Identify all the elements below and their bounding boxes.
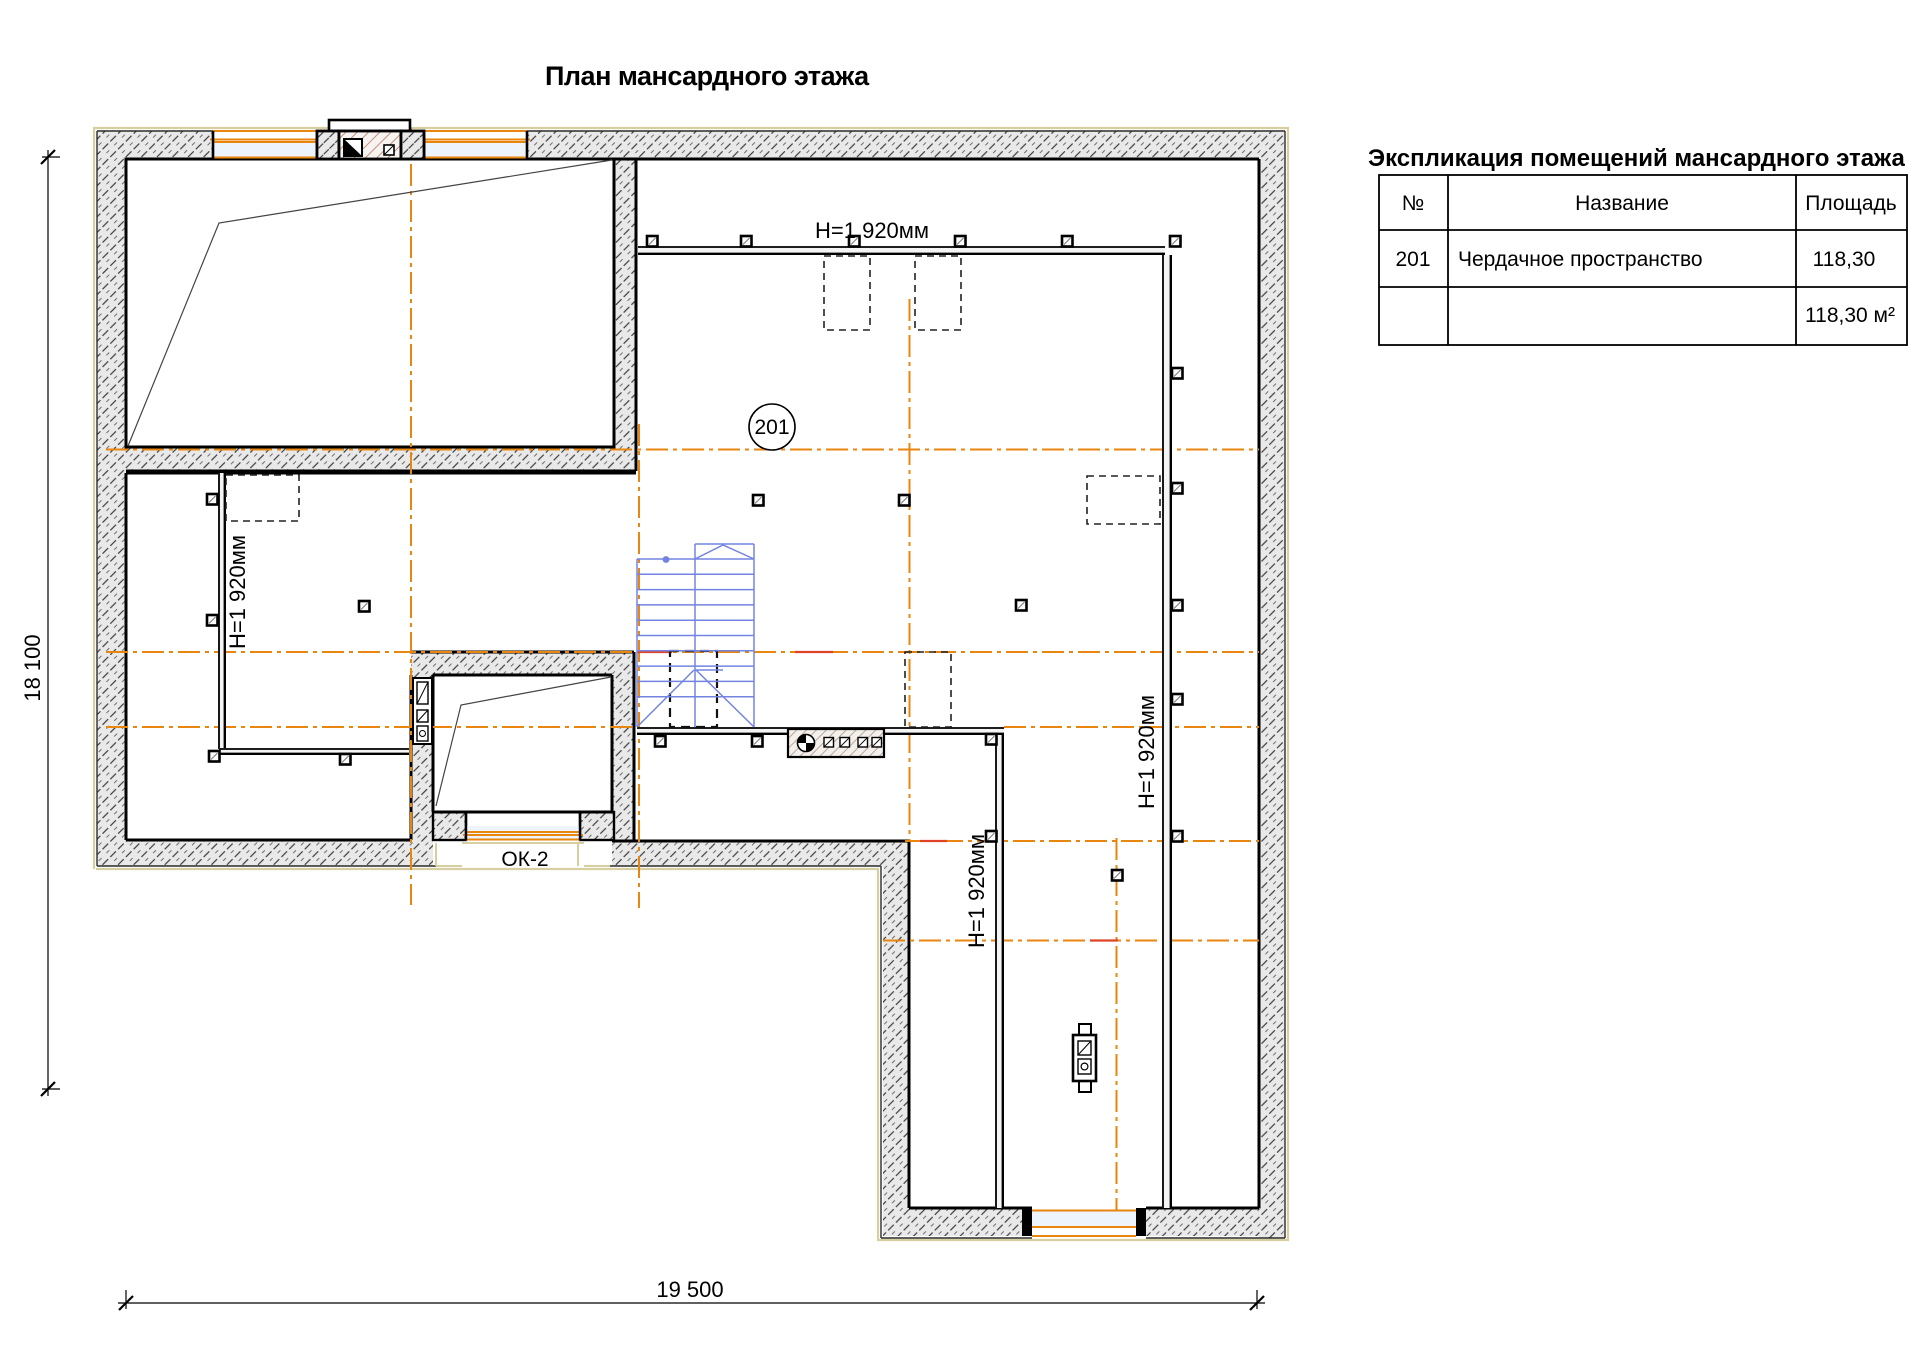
svg-text:Н=1 920мм: Н=1 920мм	[1134, 695, 1159, 809]
svg-text:19 500: 19 500	[656, 1277, 723, 1302]
svg-text:Площадь: Площадь	[1805, 192, 1896, 215]
svg-text:План мансардного этажа: План мансардного этажа	[545, 61, 870, 91]
svg-text:Название: Название	[1575, 192, 1669, 215]
svg-text:Н=1 920мм: Н=1 920мм	[964, 834, 989, 948]
svg-text:Н=1 920мм: Н=1 920мм	[225, 535, 250, 649]
svg-text:201: 201	[1395, 248, 1430, 271]
svg-text:18 100: 18 100	[20, 634, 45, 701]
svg-text:118,30: 118,30	[1813, 248, 1876, 271]
svg-text:Н=1 920мм: Н=1 920мм	[815, 218, 929, 243]
svg-text:№: №	[1402, 192, 1425, 215]
svg-text:201: 201	[754, 416, 789, 439]
svg-text:Экспликация помещений мансардн: Экспликация помещений мансардного этажа	[1368, 145, 1905, 172]
svg-text:ОК-2: ОК-2	[501, 848, 548, 871]
svg-text:Чердачное пространство: Чердачное пространство	[1458, 248, 1703, 271]
svg-text:118,30 м²: 118,30 м²	[1805, 304, 1895, 327]
